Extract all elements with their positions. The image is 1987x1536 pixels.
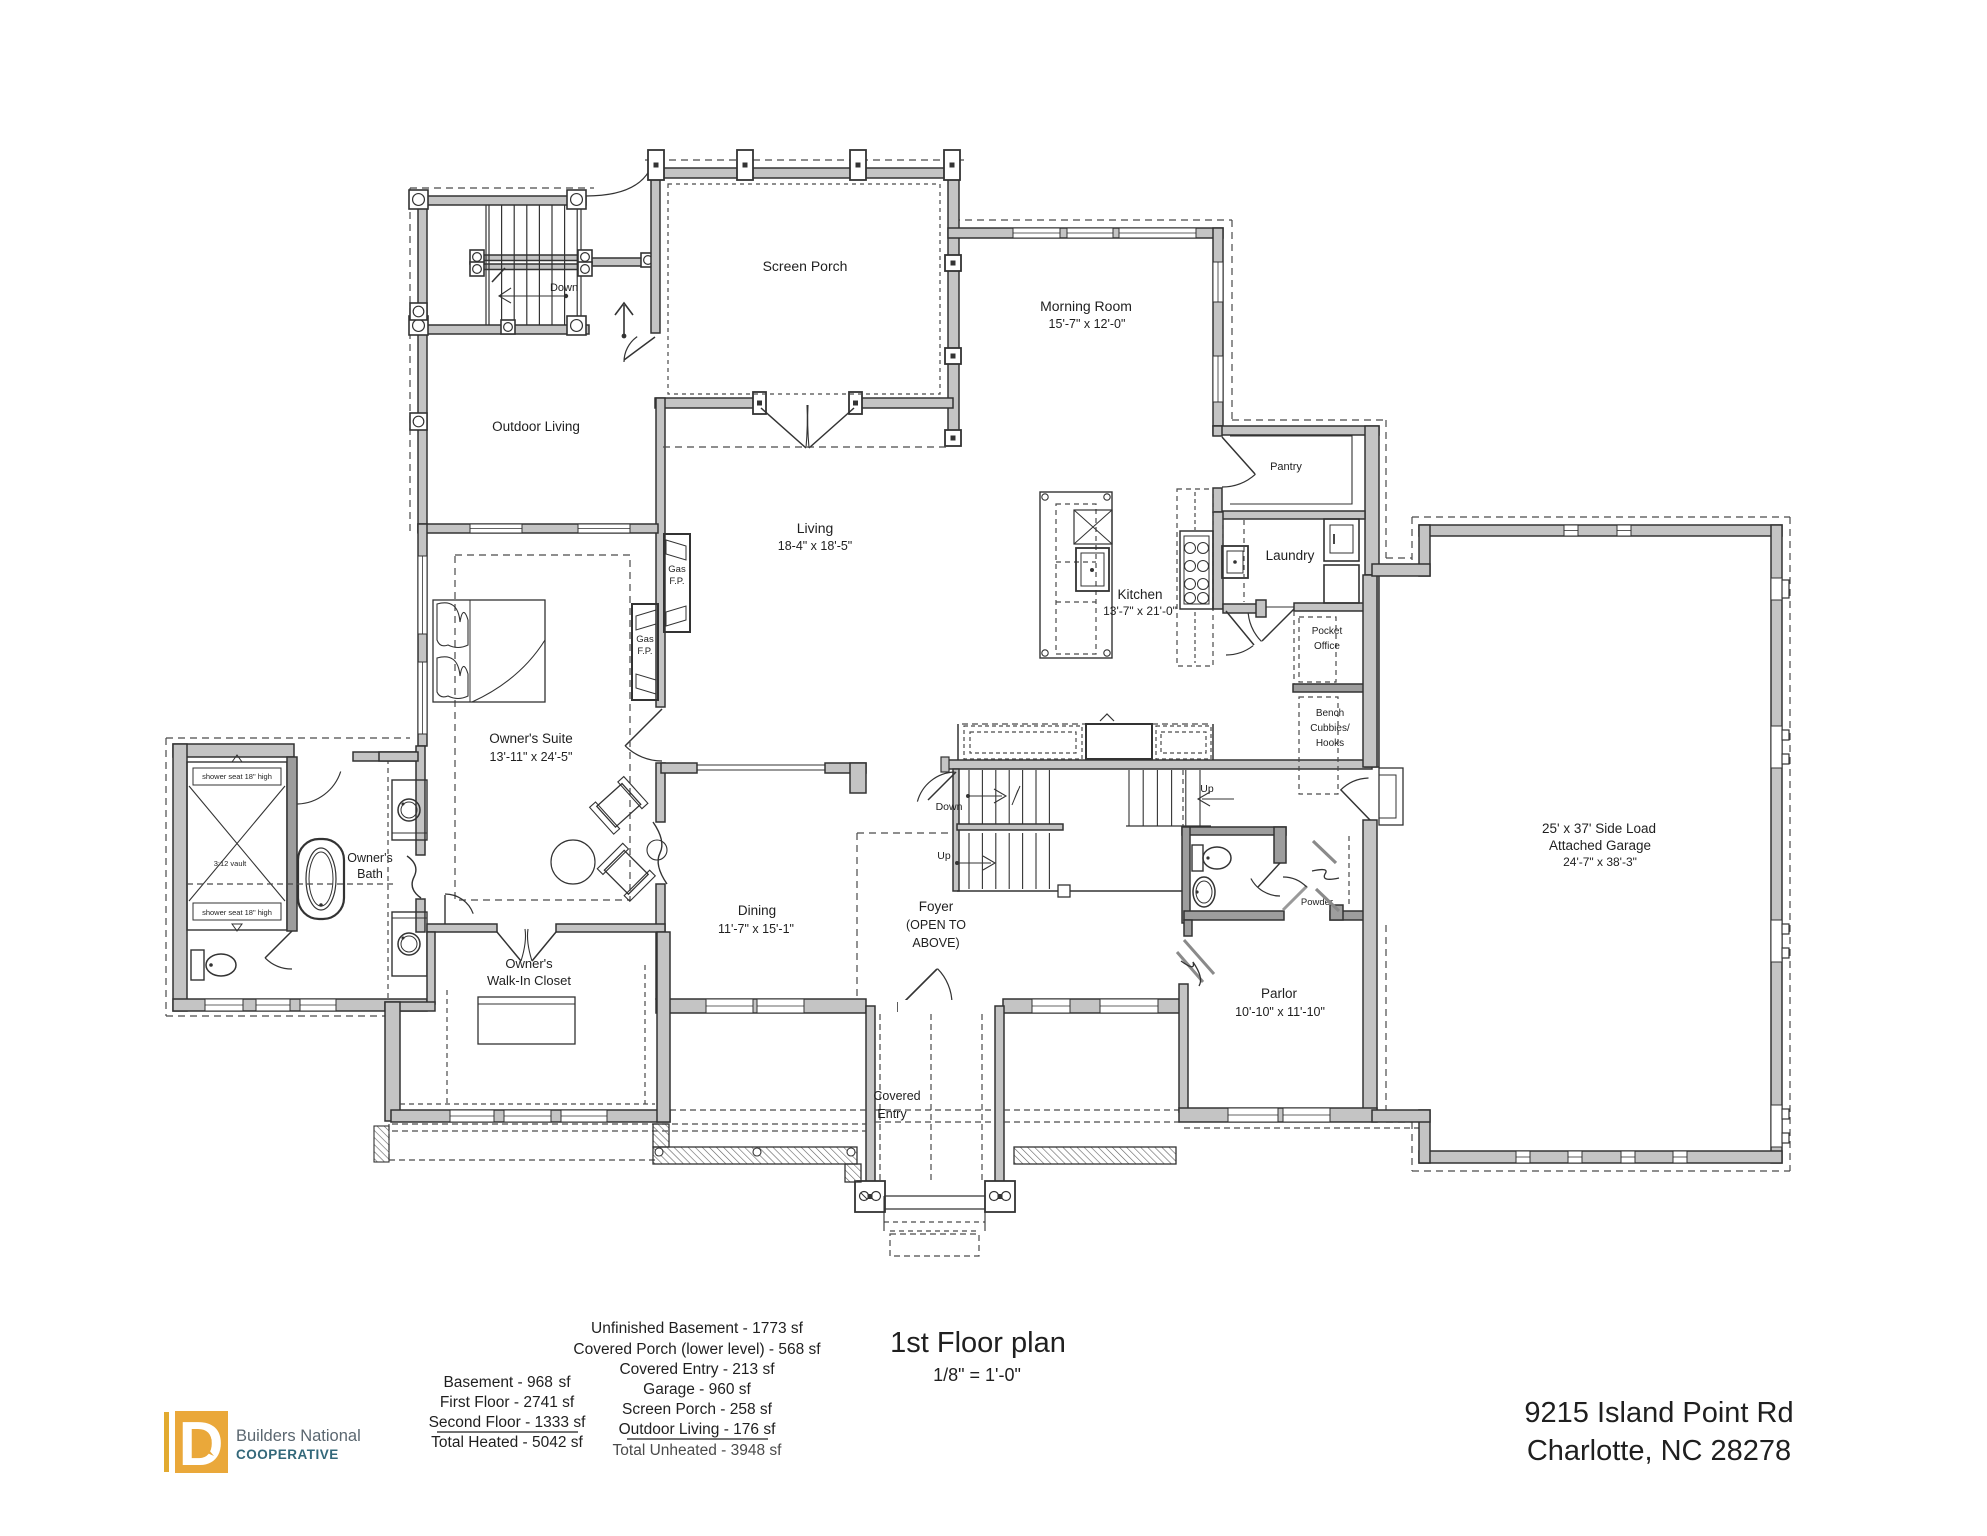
svg-text:Basement - 968 sf: Basement - 968 sf xyxy=(443,1374,571,1391)
svg-text:F.P.: F.P. xyxy=(637,646,652,657)
svg-text:Down: Down xyxy=(550,282,578,294)
svg-text:Foyer: Foyer xyxy=(919,899,954,914)
svg-text:Garage - 960 sf: Garage - 960 sf xyxy=(643,1381,751,1398)
svg-text:(OPEN TO: (OPEN TO xyxy=(906,918,966,932)
svg-text:Bath: Bath xyxy=(357,867,383,881)
svg-text:Second Floor - 1333 sf: Second Floor - 1333 sf xyxy=(429,1414,587,1431)
svg-text:Pocket: Pocket xyxy=(1312,626,1343,637)
svg-text:Covered Porch (lower level) -: Covered Porch (lower level) - 568 sf xyxy=(573,1341,821,1358)
svg-text:24'-7" x 38'-3": 24'-7" x 38'-3" xyxy=(1563,855,1637,869)
svg-text:COOPERATIVE: COOPERATIVE xyxy=(236,1447,339,1462)
svg-text:Parlor: Parlor xyxy=(1261,986,1298,1001)
svg-text:D: D xyxy=(179,1410,224,1479)
svg-text:Screen Porch - 258 sf: Screen Porch - 258 sf xyxy=(622,1401,773,1418)
svg-text:Laundry: Laundry xyxy=(1266,548,1315,563)
svg-text:Total Heated - 5042 sf: Total Heated - 5042 sf xyxy=(431,1434,583,1451)
svg-text:Builders National: Builders National xyxy=(236,1427,361,1445)
svg-text:First Floor - 2741 sf: First Floor - 2741 sf xyxy=(440,1394,575,1411)
svg-text:Screen Porch: Screen Porch xyxy=(763,258,848,274)
svg-text:10'-10" x 11'-10": 10'-10" x 11'-10" xyxy=(1235,1005,1325,1019)
svg-text:Dining: Dining xyxy=(738,903,776,918)
svg-text:Up: Up xyxy=(937,850,951,862)
svg-text:25' x 37' Side Load: 25' x 37' Side Load xyxy=(1542,821,1656,836)
svg-text:Owner's Suite: Owner's Suite xyxy=(489,731,573,746)
svg-text:Cubbies/: Cubbies/ xyxy=(1310,723,1350,734)
svg-text:1/8" = 1'-0": 1/8" = 1'-0" xyxy=(933,1365,1021,1385)
svg-text:Pantry: Pantry xyxy=(1270,461,1302,473)
svg-text:Morning Room: Morning Room xyxy=(1040,298,1132,314)
svg-text:Gas: Gas xyxy=(668,564,686,575)
svg-text:18-4" x 18'-5": 18-4" x 18'-5" xyxy=(778,539,853,553)
svg-text:13'-11" x 24'-5": 13'-11" x 24'-5" xyxy=(490,750,573,764)
svg-text:ABOVE): ABOVE) xyxy=(912,936,959,950)
svg-text:Attached Garage: Attached Garage xyxy=(1549,838,1651,853)
svg-text:Total Unheated - 3948 sf: Total Unheated - 3948 sf xyxy=(613,1442,783,1459)
svg-text:1st Floor plan: 1st Floor plan xyxy=(890,1327,1066,1359)
svg-text:Living: Living xyxy=(797,520,834,536)
svg-text:Owner's: Owner's xyxy=(347,851,392,865)
svg-text:Covered: Covered xyxy=(873,1089,920,1103)
svg-text:Outdoor Living: Outdoor Living xyxy=(492,419,580,434)
svg-text:Outdoor Living - 176 sf: Outdoor Living - 176 sf xyxy=(619,1421,777,1438)
svg-text:F.P.: F.P. xyxy=(669,576,684,587)
svg-text:Bench: Bench xyxy=(1316,708,1344,719)
svg-text:Gas: Gas xyxy=(636,634,654,645)
svg-text:Walk-In Closet: Walk-In Closet xyxy=(487,973,571,988)
svg-text:3:12 vault: 3:12 vault xyxy=(214,859,247,868)
svg-text:shower seat 18" high: shower seat 18" high xyxy=(202,908,272,917)
svg-text:Down: Down xyxy=(936,801,963,813)
svg-text:Office: Office xyxy=(1314,641,1340,652)
svg-text:11'-7" x 15'-1": 11'-7" x 15'-1" xyxy=(718,922,794,936)
svg-text:Kitchen: Kitchen xyxy=(1117,587,1162,602)
svg-text:Entry: Entry xyxy=(877,1107,907,1121)
svg-text:Owner's: Owner's xyxy=(505,956,553,971)
svg-text:13'-7" x 21'-0": 13'-7" x 21'-0" xyxy=(1103,604,1177,618)
svg-text:Covered Entry - 213 sf: Covered Entry - 213 sf xyxy=(619,1361,775,1378)
svg-text:9215 Island Point Rd: 9215 Island Point Rd xyxy=(1524,1397,1793,1429)
svg-text:shower seat 18" high: shower seat 18" high xyxy=(202,772,272,781)
svg-text:15'-7" x 12'-0": 15'-7" x 12'-0" xyxy=(1049,317,1126,331)
svg-text:Unfinished Basement - 1773 sf: Unfinished Basement - 1773 sf xyxy=(591,1320,804,1337)
svg-text:Charlotte, NC 28278: Charlotte, NC 28278 xyxy=(1527,1435,1791,1467)
svg-text:Hooks: Hooks xyxy=(1316,738,1344,749)
